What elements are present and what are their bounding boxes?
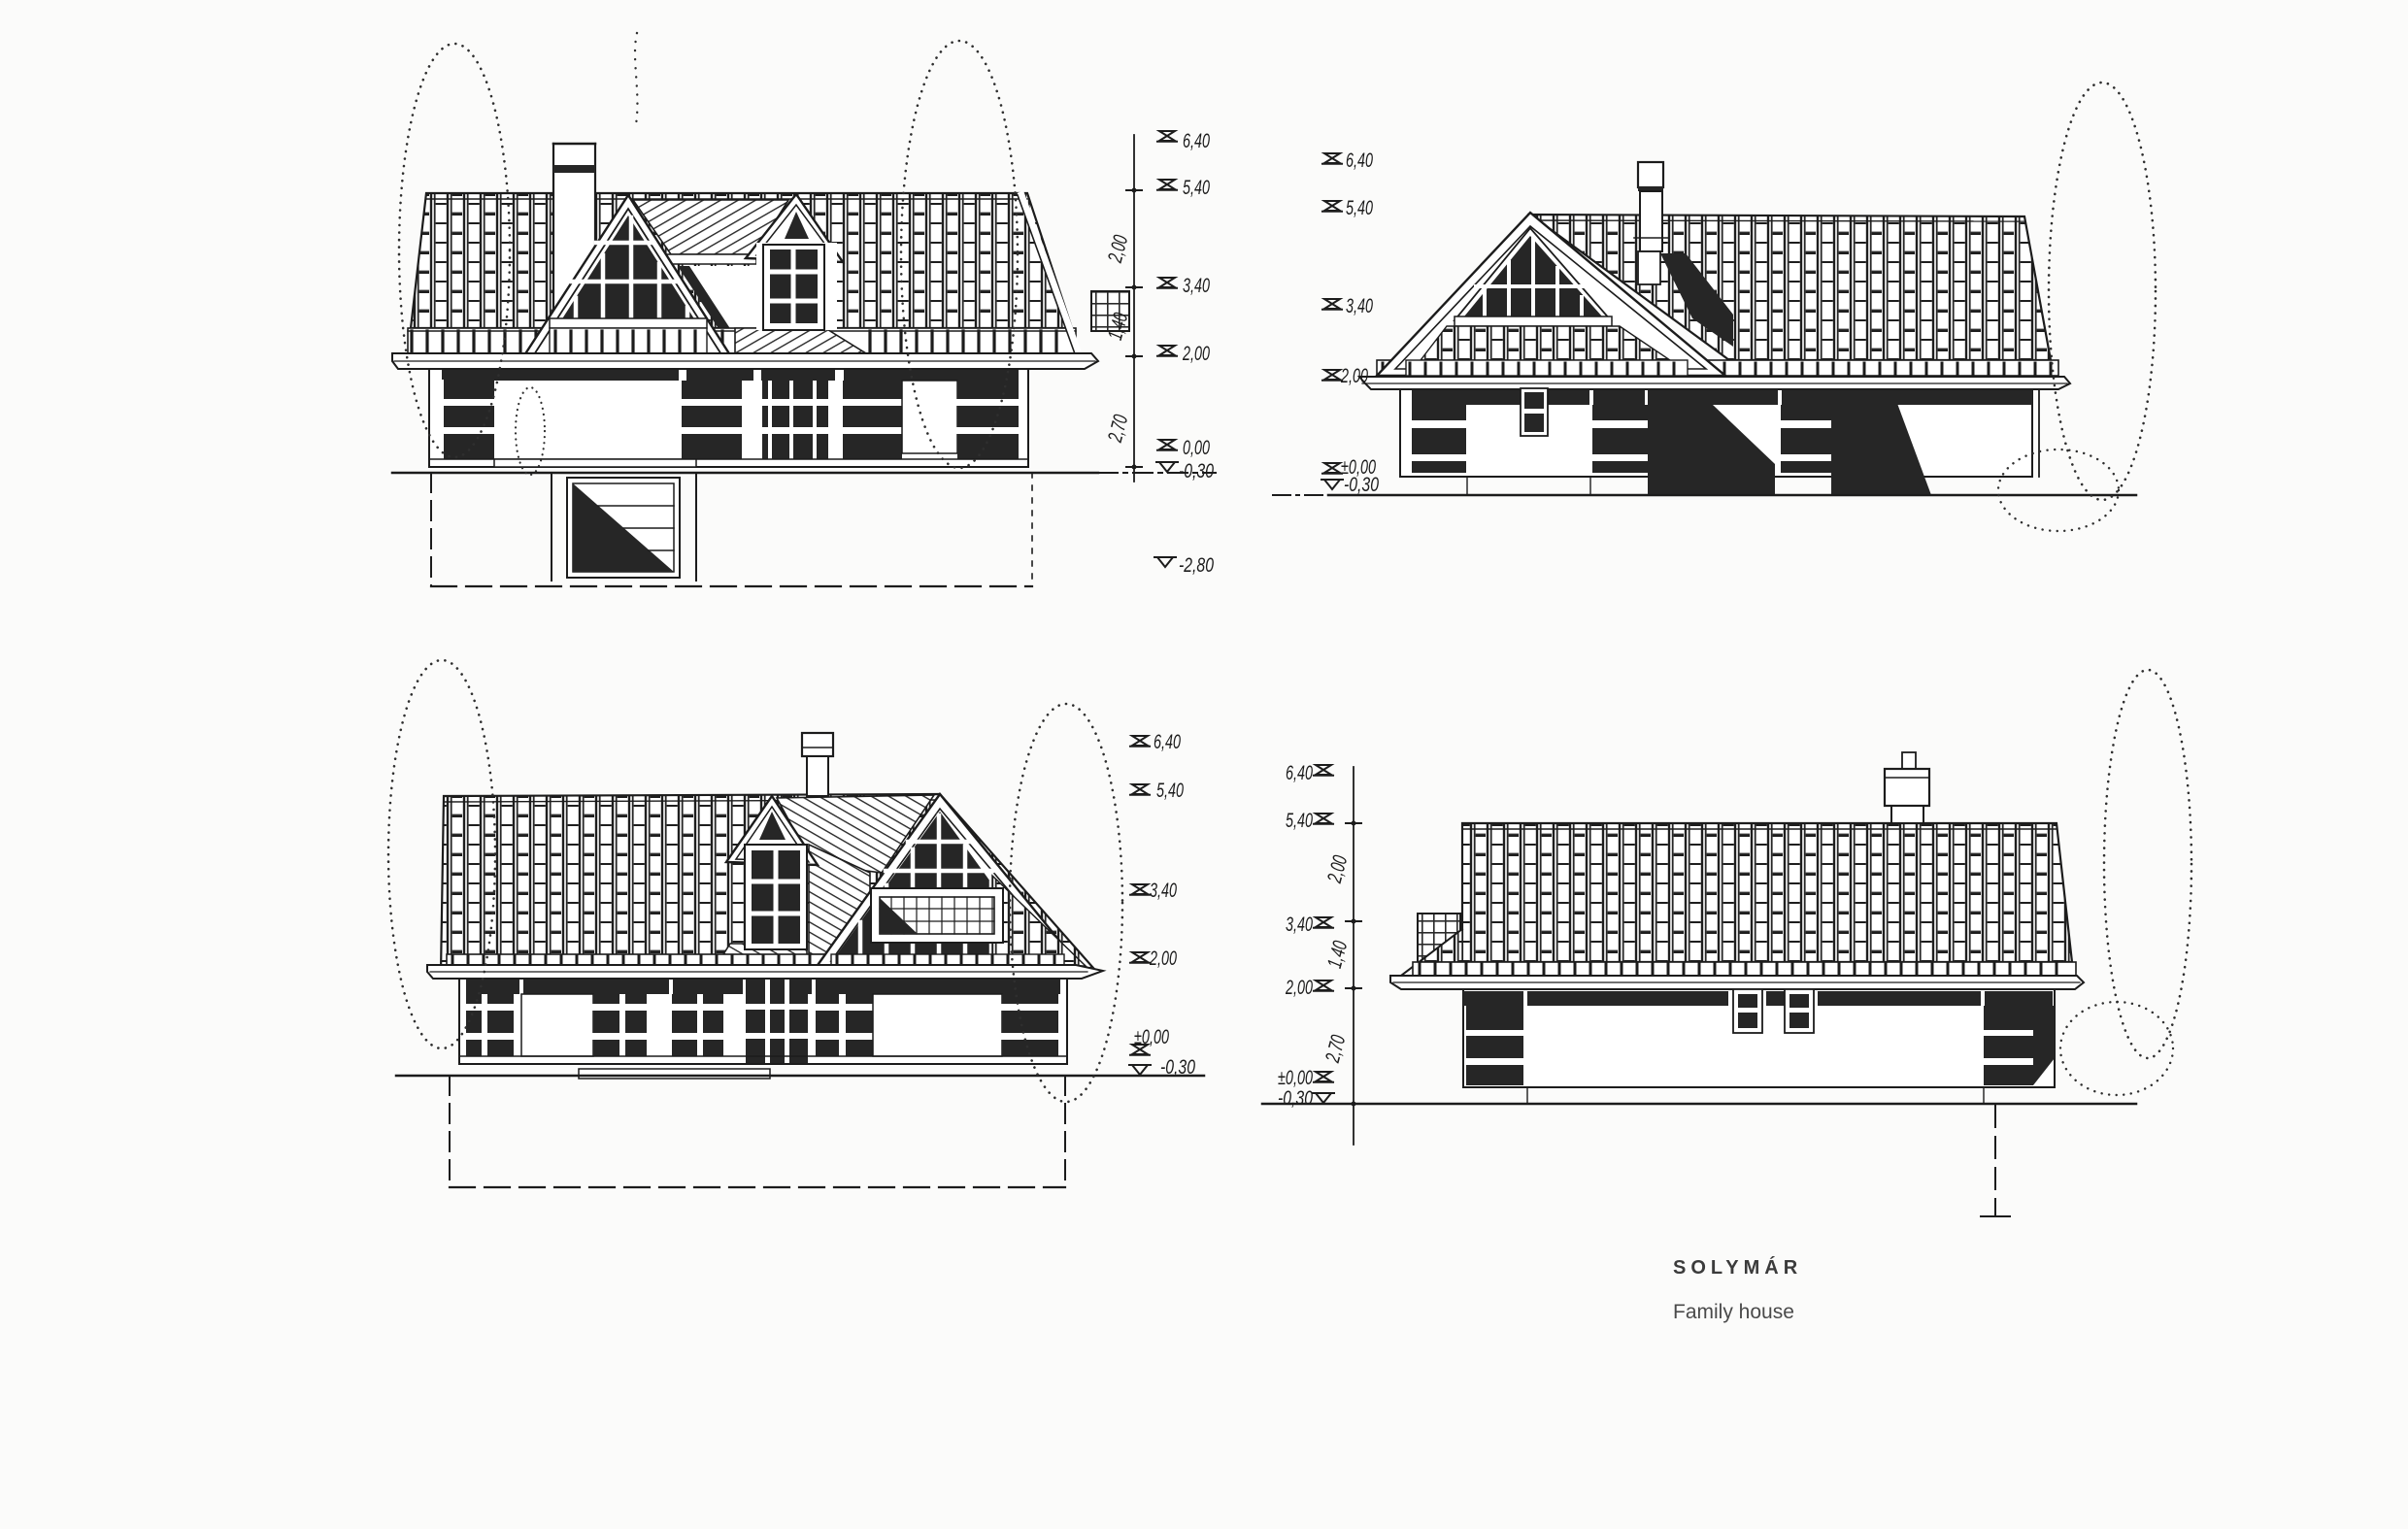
svg-text:3,40: 3,40 [1286,914,1313,936]
svg-text:5,40: 5,40 [1286,810,1313,832]
svg-text:5,40: 5,40 [1156,780,1184,802]
svg-text:-0,30: -0,30 [1179,460,1214,482]
svg-text:Family house: Family house [1673,1301,1794,1323]
svg-text:2,00: 2,00 [1182,343,1210,365]
svg-text:SOLYMÁR: SOLYMÁR [1673,1256,1802,1279]
svg-text:3,40: 3,40 [1150,880,1177,902]
svg-text:3,40: 3,40 [1346,295,1373,317]
svg-text:-0,30: -0,30 [1160,1056,1195,1079]
svg-text:5,40: 5,40 [1183,177,1210,199]
svg-text:6,40: 6,40 [1286,762,1313,784]
svg-text:0,00: 0,00 [1183,437,1210,459]
svg-text:6,40: 6,40 [1154,731,1181,753]
svg-text:6,40: 6,40 [1346,150,1373,172]
svg-text:2,00: 2,00 [1149,947,1177,970]
svg-text:5,40: 5,40 [1346,197,1373,219]
svg-text:±0,00: ±0,00 [1134,1026,1169,1048]
svg-text:2,00: 2,00 [1285,977,1313,999]
svg-text:-0,30: -0,30 [1278,1087,1313,1110]
svg-text:±0,00: ±0,00 [1278,1067,1313,1089]
svg-text:-2,80: -2,80 [1179,554,1214,577]
svg-text:2,00: 2,00 [1340,365,1368,387]
svg-text:6,40: 6,40 [1183,130,1210,152]
svg-text:3,40: 3,40 [1183,275,1210,297]
svg-text:-0,30: -0,30 [1344,474,1379,496]
